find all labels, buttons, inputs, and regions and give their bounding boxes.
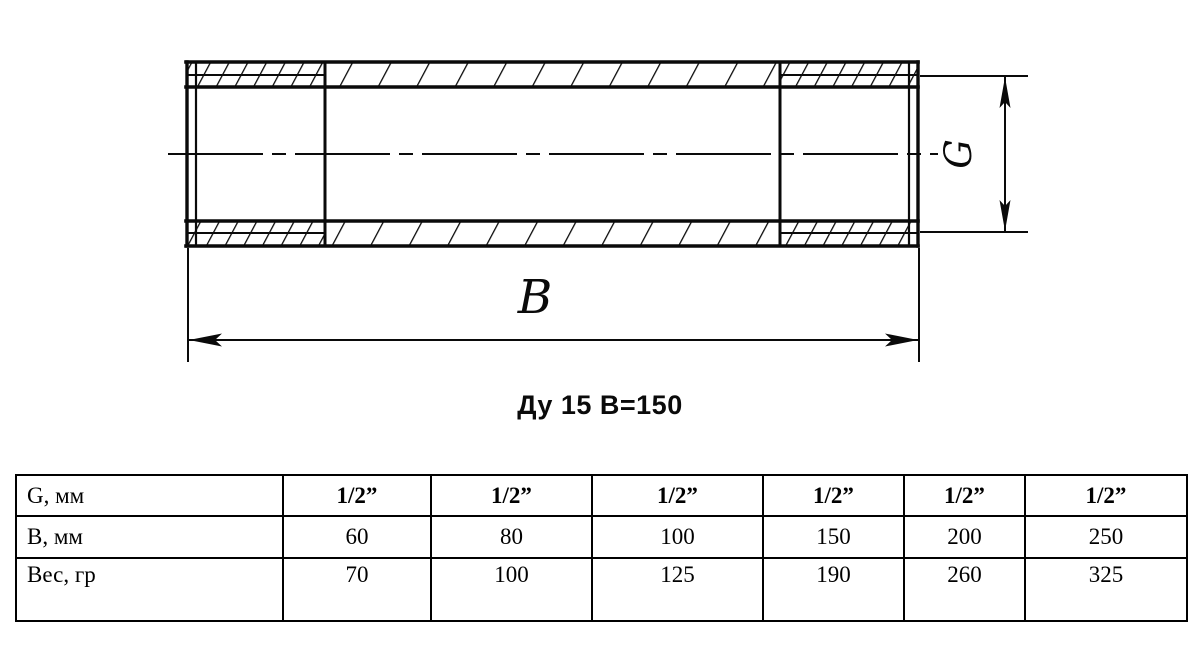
value-cell: 70	[283, 558, 431, 621]
value-cell: 200	[904, 516, 1025, 558]
value-cell: 60	[283, 516, 431, 558]
value-cell: 325	[1025, 558, 1187, 621]
value-cell: 80	[431, 516, 592, 558]
value-cell: 150	[763, 516, 904, 558]
table-row-b: В, мм 60 80 100 150 200 250	[16, 516, 1187, 558]
body-hatch-bottom	[325, 221, 780, 246]
table-row-weight: Вес, гр 70 100 125 190 260 325	[16, 558, 1187, 621]
value-cell: 125	[592, 558, 763, 621]
dimension-b-label: B	[517, 270, 553, 325]
value-cell: 1/2”	[283, 475, 431, 516]
value-cell: 250	[1025, 516, 1187, 558]
drawing-caption: Ду 15 В=150	[0, 390, 1200, 421]
value-cell: 1/2”	[592, 475, 763, 516]
value-cell: 1/2”	[904, 475, 1025, 516]
dimension-b: B	[188, 248, 919, 362]
value-cell: 260	[904, 558, 1025, 621]
row-label-cell: Вес, гр	[16, 558, 283, 621]
value-cell: 1/2”	[763, 475, 904, 516]
table-row-g: G, мм 1/2” 1/2” 1/2” 1/2” 1/2” 1/2”	[16, 475, 1187, 516]
value-cell: 100	[431, 558, 592, 621]
row-label-cell: G, мм	[16, 475, 283, 516]
value-cell: 1/2”	[1025, 475, 1187, 516]
row-label-cell: В, мм	[16, 516, 283, 558]
dimension-g: G	[920, 76, 1028, 232]
page: G B Ду 15 В=150 G, мм 1/2” 1/2”	[0, 0, 1200, 656]
body-hatch-top	[325, 62, 780, 87]
value-cell: 190	[763, 558, 904, 621]
spec-table: G, мм 1/2” 1/2” 1/2” 1/2” 1/2” 1/2” В, м…	[15, 474, 1188, 622]
value-cell: 1/2”	[431, 475, 592, 516]
value-cell: 100	[592, 516, 763, 558]
dimension-g-label: G	[937, 139, 980, 169]
